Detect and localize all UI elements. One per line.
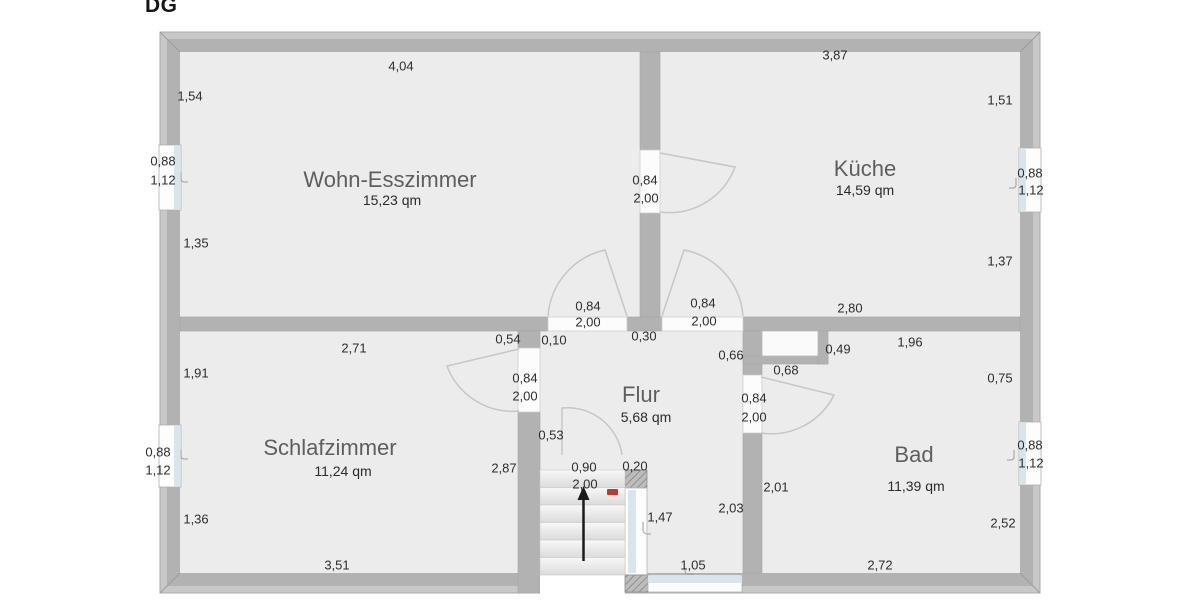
measurement-label: 2,00 — [691, 314, 716, 329]
measurement-label: 0,84 — [512, 371, 537, 386]
measurement-label: 1,35 — [183, 236, 208, 251]
measurement-label: 2,80 — [837, 301, 862, 316]
measurement-label: 2,71 — [341, 341, 366, 356]
room-area-kueche: 14,59 qm — [836, 182, 894, 198]
measurement-label: 1,37 — [987, 254, 1012, 269]
room-label-bad: Bad — [894, 442, 933, 468]
floor-plan-canvas: DG Wohn-Esszimmer 15,23 qm Küche 14,59 q… — [0, 0, 1200, 600]
measurement-label: 0,10 — [541, 333, 566, 348]
measurement-label: 1,54 — [177, 89, 202, 104]
measurement-label: 0,88 — [145, 445, 170, 460]
shaft — [762, 331, 818, 356]
measurement-label: 0,49 — [825, 342, 850, 357]
measurement-label: 1,12 — [1018, 456, 1043, 471]
entry-glazing — [648, 575, 742, 592]
measurement-label: 2,00 — [741, 410, 766, 425]
measurement-label: 2,52 — [990, 516, 1015, 531]
measurement-label: 0,54 — [495, 332, 520, 347]
measurement-label: 1,05 — [680, 558, 705, 573]
measurement-label: 0,20 — [622, 459, 647, 474]
measurement-label: 0,84 — [690, 296, 715, 311]
measurement-label: 1,96 — [897, 335, 922, 350]
measurement-label: 0,66 — [718, 348, 743, 363]
floor-title: DG — [145, 0, 178, 18]
red-marker — [607, 489, 618, 495]
room-label-flur: Flur — [622, 382, 660, 408]
measurement-label: 1,91 — [183, 366, 208, 381]
room-label-wohn-esszimmer: Wohn-Esszimmer — [303, 167, 476, 193]
measurement-label: 2,00 — [512, 389, 537, 404]
measurement-label: 0,88 — [1017, 166, 1042, 181]
measurement-label: 1,12 — [1018, 183, 1043, 198]
measurement-label: 2,00 — [575, 315, 600, 330]
room-area-schlafzimmer: 11,24 qm — [314, 463, 371, 479]
measurement-label: 1,51 — [987, 93, 1012, 108]
room-area-bad: 11,39 qm — [887, 478, 944, 494]
measurement-label: 0,75 — [987, 371, 1012, 386]
measurement-label: 1,36 — [183, 512, 208, 527]
measurement-label: 0,68 — [773, 363, 798, 378]
measurement-label: 0,84 — [575, 299, 600, 314]
measurement-label: 2,03 — [718, 501, 743, 516]
measurement-label: 3,51 — [324, 558, 349, 573]
measurement-label: 2,01 — [763, 480, 788, 495]
measurement-label: 0,30 — [631, 329, 656, 344]
measurement-label: 0,90 — [571, 460, 596, 475]
measurement-label: 0,88 — [1017, 438, 1042, 453]
room-label-schlafzimmer: Schlafzimmer — [263, 435, 396, 461]
measurement-label: 0,84 — [741, 391, 766, 406]
measurement-label: 1,47 — [647, 510, 672, 525]
measurement-label: 2,00 — [633, 191, 658, 206]
room-area-flur: 5,68 qm — [621, 409, 672, 425]
room-area-wohn-esszimmer: 15,23 qm — [363, 192, 421, 208]
room-label-kueche: Küche — [834, 156, 896, 182]
measurement-label: 3,87 — [822, 48, 847, 63]
measurement-label: 2,72 — [867, 558, 892, 573]
measurement-label: 0,84 — [632, 173, 657, 188]
measurement-label: 2,00 — [572, 477, 597, 492]
stairwell-opening — [540, 573, 625, 600]
window — [1019, 422, 1041, 485]
measurement-label: 0,53 — [538, 428, 563, 443]
measurement-label: 0,88 — [150, 154, 175, 169]
measurement-label: 1,12 — [145, 463, 170, 478]
measurement-label: 1,12 — [150, 173, 175, 188]
measurement-label: 4,04 — [388, 59, 413, 74]
measurement-label: 2,87 — [491, 461, 516, 476]
glass-partition — [625, 470, 648, 592]
